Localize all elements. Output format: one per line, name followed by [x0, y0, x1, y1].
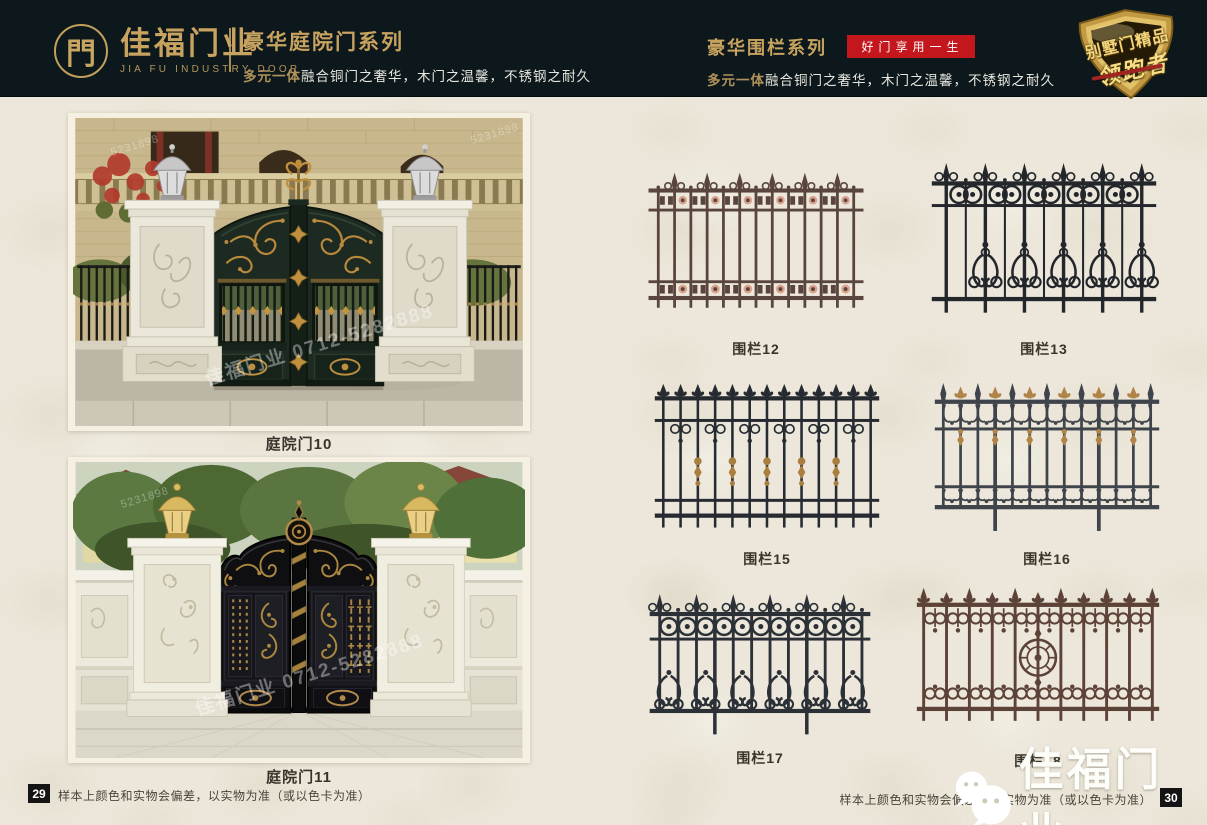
premium-shield-badge: 别墅门精品 领跑者: [1053, 0, 1206, 109]
brand-watermark-text: 佳福门业: [1019, 733, 1207, 825]
series-left-block: 豪华庭院门系列 多元一体融合铜门之奢华，木门之温馨，不锈钢之耐久: [243, 26, 591, 85]
wechat-icon: [950, 765, 1019, 825]
header-divider: [229, 28, 231, 72]
slogan-badge: 好门享用一生: [847, 35, 975, 58]
fence-image-12: [642, 155, 870, 327]
catalog-spread: 門 佳福门业 JIA FU INDUSTRY DOOR 豪华庭院门系列 多元一体…: [0, 0, 1207, 825]
subtitle-rest: 融合铜门之奢华，木门之温馨，不锈钢之耐久: [765, 73, 1055, 88]
disclaimer-left: 样本上颜色和实物会偏差，以实物为准（或以色卡为准）: [58, 787, 371, 804]
fence-image-13: [925, 148, 1163, 326]
series-left-title: 豪华庭院门系列: [243, 26, 591, 56]
gate-10-caption: 庭院门10: [68, 433, 530, 454]
series-right-subtitle: 多元一体融合铜门之奢华，木门之温馨，不锈钢之耐久: [707, 69, 1055, 89]
subtitle-lead: 多元一体: [243, 69, 301, 84]
logo-glyph: 門: [66, 29, 96, 73]
series-right-block: 豪华围栏系列 好门享用一生 多元一体融合铜门之奢华，木门之温馨，不锈钢之耐久: [707, 34, 1055, 89]
gate-photo-10: [68, 113, 530, 431]
series-right-title: 豪华围栏系列: [707, 38, 827, 58]
gate-photo-11: [68, 457, 530, 763]
header-bar: 門 佳福门业 JIA FU INDUSTRY DOOR 豪华庭院门系列 多元一体…: [0, 0, 1207, 97]
fence-15-caption: 围栏15: [648, 549, 886, 569]
series-left-subtitle: 多元一体融合铜门之奢华，木门之温馨，不锈钢之耐久: [243, 65, 591, 85]
fence-17-caption: 围栏17: [643, 748, 877, 768]
gate-11-caption: 庭院门11: [68, 766, 530, 787]
gate-11-illustration: [73, 462, 525, 758]
brand-watermark: 佳福门业: [950, 733, 1207, 825]
fence-image-16: [928, 368, 1166, 546]
gate-10-illustration: [73, 118, 525, 426]
page-number-left: 29: [28, 784, 50, 803]
door-glyph-icon: 門: [54, 24, 108, 78]
series-right-title-row: 豪华围栏系列 好门享用一生: [707, 34, 1055, 61]
fence-16-caption: 围栏16: [928, 549, 1166, 569]
subtitle-rest: 融合铜门之奢华，木门之温馨，不锈钢之耐久: [301, 69, 591, 84]
fence-image-18: [910, 580, 1166, 732]
fence-image-17: [643, 574, 877, 751]
subtitle-lead: 多元一体: [707, 73, 765, 88]
fence-13-caption: 围栏13: [925, 339, 1163, 359]
fence-image-15: [648, 372, 886, 542]
fence-12-caption: 围栏12: [642, 339, 870, 359]
